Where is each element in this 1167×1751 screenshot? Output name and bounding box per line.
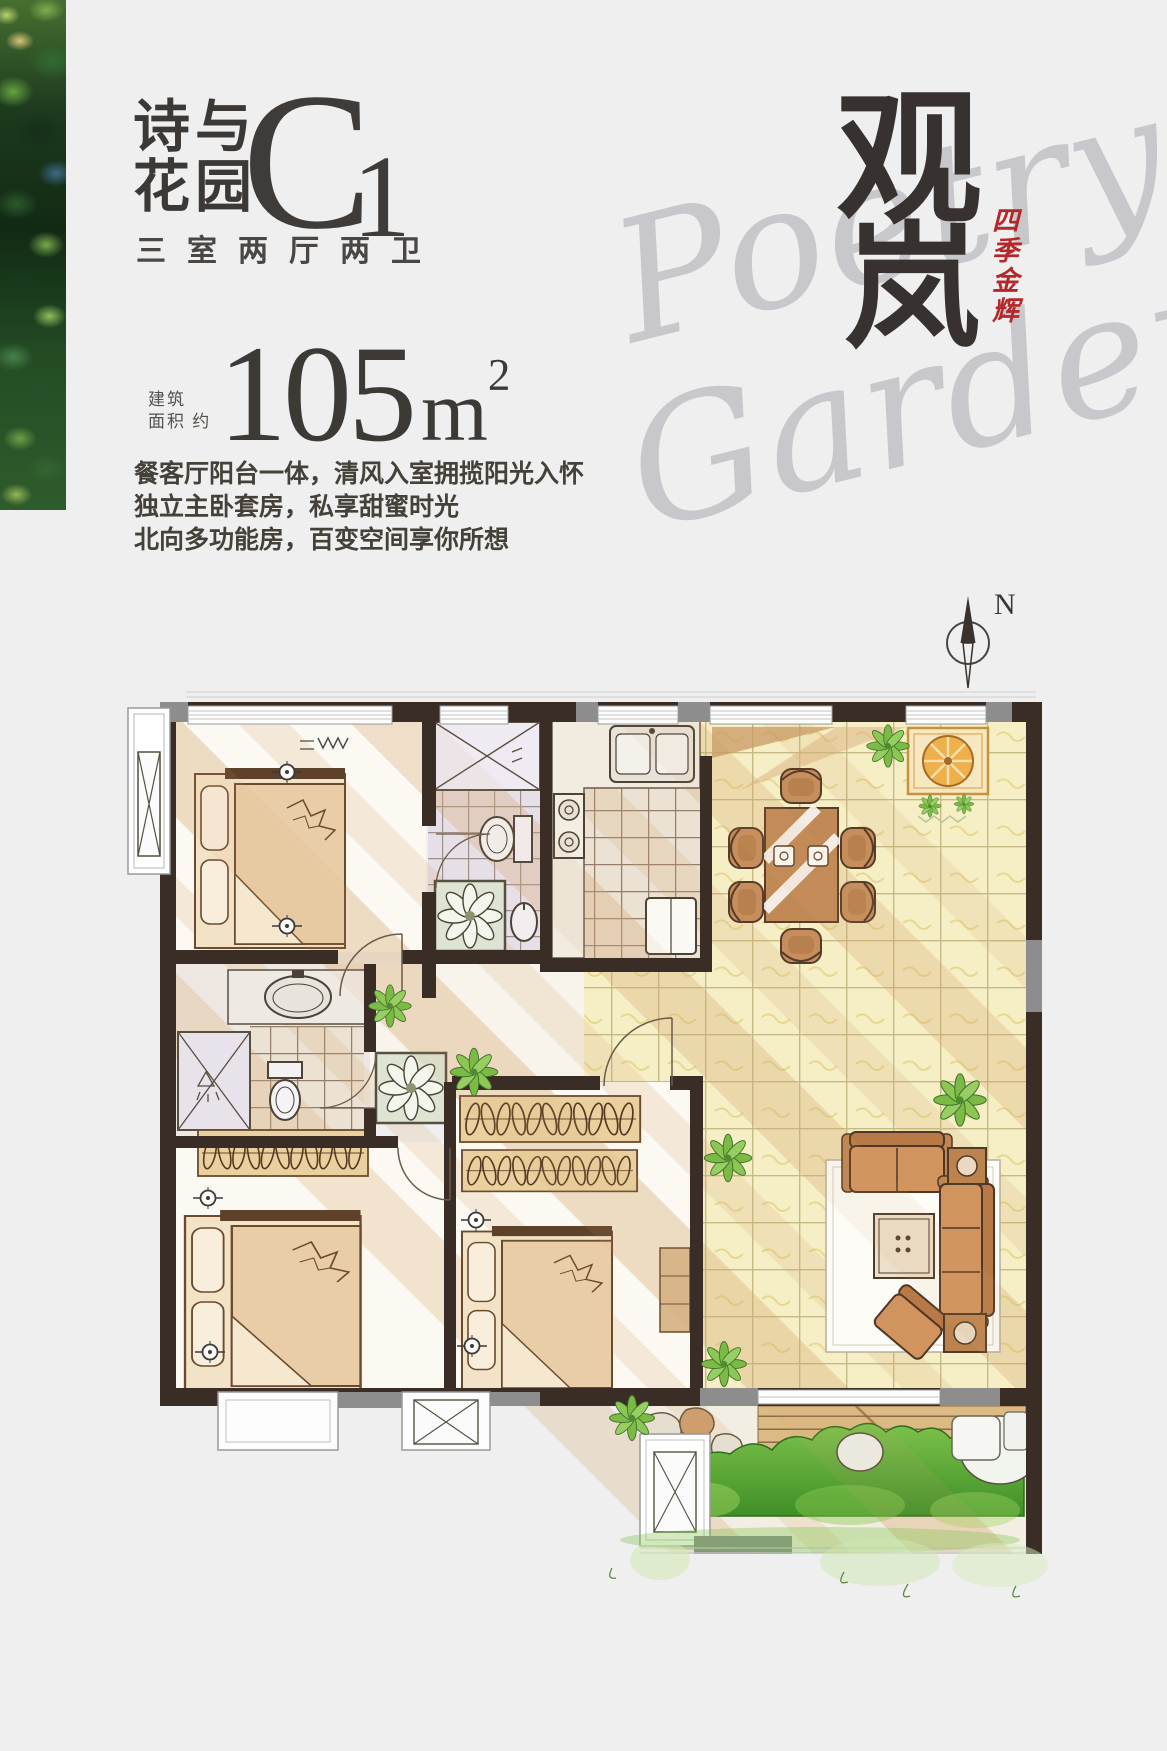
dining-chair (781, 929, 821, 963)
plant-icon (702, 1342, 747, 1387)
floorplan-poster-page: 诗与 花园 C 1 三室两厅两卫 建筑 面积 约 105m2 餐客厅阳台一体，清… (0, 0, 1167, 1751)
plant-icon (934, 1074, 987, 1127)
compass-north-label: N (994, 588, 1016, 621)
compass: N (947, 588, 1016, 688)
garden-overflow (610, 1527, 1048, 1597)
dining-chair (729, 882, 763, 922)
window-bottom-middle (402, 1392, 490, 1450)
window-top-3 (598, 706, 678, 724)
dining-chair (841, 828, 875, 868)
plant-icon (369, 985, 412, 1028)
compass-needle-icon (961, 596, 976, 643)
garden-window-left (640, 1434, 710, 1546)
window-top-4 (710, 706, 832, 724)
plant-icon (610, 1396, 655, 1441)
plant-icon (704, 1134, 752, 1182)
plant-icon (450, 1048, 498, 1096)
garden-slider-window (758, 1390, 940, 1404)
floor-tile-flower-icon (435, 881, 505, 951)
window-top-2 (440, 706, 508, 724)
plant-icon (919, 795, 942, 818)
plant-icon (954, 794, 974, 814)
toilet-icon (270, 1080, 300, 1120)
window-bottom-master (218, 1392, 338, 1450)
bay-window-left (128, 708, 170, 874)
dining-chair (781, 769, 821, 803)
plant-icon (867, 725, 910, 768)
floor-plan-illustration: N (0, 0, 1167, 1751)
window-top-1 (188, 706, 392, 724)
window-top-5 (906, 706, 986, 724)
